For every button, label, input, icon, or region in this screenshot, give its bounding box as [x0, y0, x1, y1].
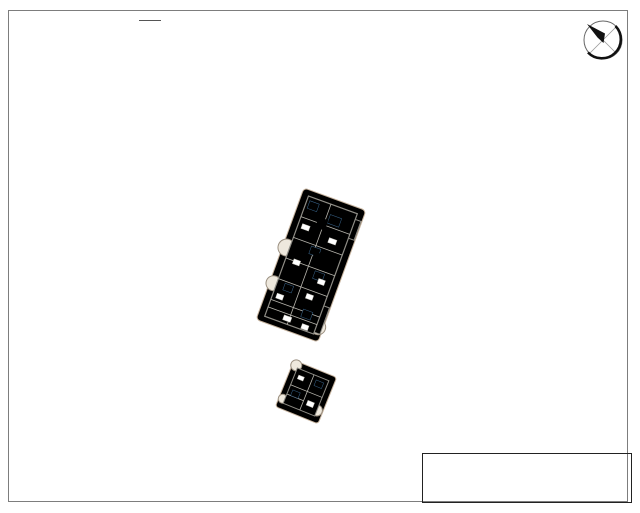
disclaimer-box [422, 453, 632, 503]
main-house [252, 186, 368, 343]
compass-rose [584, 21, 622, 59]
siteplan-page [0, 0, 640, 513]
header [20, 14, 280, 23]
site-map [0, 0, 640, 513]
guest-house [274, 358, 337, 424]
compass-needle-icon [587, 24, 605, 43]
title-divider [139, 20, 161, 21]
